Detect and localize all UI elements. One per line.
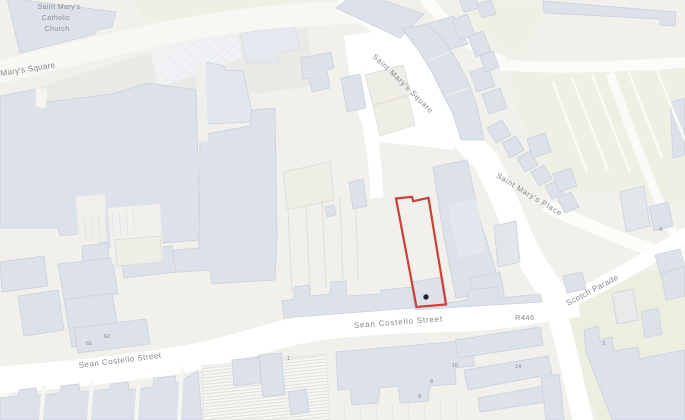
- svg-text:R446: R446: [515, 313, 535, 322]
- svg-text:62: 62: [104, 334, 110, 340]
- svg-text:8: 8: [430, 379, 433, 385]
- svg-text:Catholic: Catholic: [42, 15, 71, 22]
- svg-text:14: 14: [515, 364, 521, 370]
- svg-text:Church: Church: [45, 26, 70, 33]
- svg-text:Saint Mary's: Saint Mary's: [37, 4, 80, 11]
- svg-text:3: 3: [602, 341, 605, 347]
- svg-text:61: 61: [86, 341, 92, 347]
- svg-text:10: 10: [452, 363, 458, 369]
- svg-text:9: 9: [418, 394, 421, 400]
- svg-text:1: 1: [287, 356, 290, 362]
- svg-text:4: 4: [659, 227, 662, 233]
